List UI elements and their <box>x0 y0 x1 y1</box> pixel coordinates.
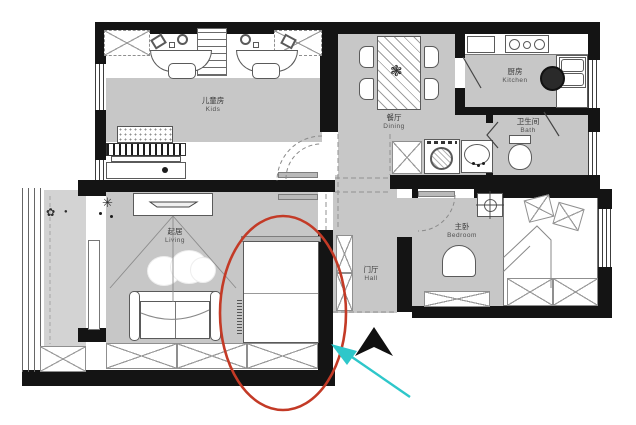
dining-chair-3 <box>424 46 439 68</box>
sofa-arm-right <box>210 291 221 341</box>
washing-machine-drum <box>430 147 453 170</box>
dining-chair-1 <box>359 46 374 68</box>
hall-shoe-cabinet-a <box>336 235 353 273</box>
room-label-bath-cn: 卫生间 <box>517 117 540 126</box>
lamp-dot-a <box>99 212 102 215</box>
wardrobe-cabinet <box>243 241 319 343</box>
laundry-cabinet <box>392 141 422 174</box>
kitchen-window <box>588 60 600 108</box>
kids-desk-fan-1 <box>177 34 188 45</box>
balcony-plant-small-icon: ● <box>64 209 68 215</box>
bedroom-doorway-floor <box>397 198 412 237</box>
room-label-kitchen-en: Kitchen <box>502 77 527 85</box>
room-label-kids: 儿童房 Kids <box>202 96 225 114</box>
balcony-sliding-frames <box>22 188 44 372</box>
burner-3 <box>534 39 545 50</box>
kids-cabinet-left <box>104 30 150 56</box>
wall-mid-left <box>95 180 335 192</box>
living-window-box-2 <box>177 343 247 369</box>
wall-bedroom-left <box>397 237 412 312</box>
kids-window <box>95 64 106 110</box>
room-label-bedroom-cn: 主卧 <box>455 222 470 231</box>
room-label-kids-cn: 儿童房 <box>202 96 225 105</box>
dining-chair-2 <box>359 78 374 100</box>
dining-plant-icon: ❃ <box>390 62 403 80</box>
sofa-seat <box>140 301 210 339</box>
north-arrow <box>355 327 393 356</box>
room-label-living-en: Living <box>165 237 185 245</box>
kitchen-stool <box>540 66 565 91</box>
room-label-hall: 门厅 Hall <box>364 265 379 283</box>
room-label-bedroom-en: Bedroom <box>447 232 477 240</box>
room-label-dining: 餐厅 Dining <box>383 113 404 131</box>
wall-bedroom-bottom <box>412 306 612 318</box>
basin-faucet-b <box>477 164 480 167</box>
wall-top <box>95 22 600 34</box>
tv-cabinet <box>133 193 213 216</box>
piano-keyboard <box>106 143 186 156</box>
coffee-table-blob-c <box>190 257 216 283</box>
dining-chair-4 <box>424 78 439 100</box>
bed-bench-2 <box>553 278 598 306</box>
wardrobe-shelf-line <box>244 293 318 294</box>
kids-desk-item-2 <box>253 42 259 48</box>
toilet-bowl <box>508 144 532 170</box>
wall-kids-left-b <box>95 110 106 160</box>
bedroom-window <box>598 209 612 267</box>
living-window-box-3 <box>247 343 318 369</box>
washing-machine-panel <box>427 141 457 144</box>
room-label-kitchen-cn: 厨房 <box>508 67 523 76</box>
kids-rug <box>117 126 173 143</box>
wall-bath-left-a <box>486 115 493 123</box>
wall-kitchen-left-a <box>455 34 465 58</box>
toilet-tank <box>509 135 531 144</box>
wall-right-b <box>588 108 600 132</box>
balcony-cabinet <box>40 346 86 372</box>
hall-shoe-cabinet-b <box>336 273 353 311</box>
threshold-bar-top <box>278 172 318 178</box>
wall-living-bottom <box>22 370 335 386</box>
balcony-sliding-panel <box>88 240 100 330</box>
burner-2 <box>523 41 531 49</box>
wash-basin <box>464 144 490 165</box>
bedroom-door-leaf <box>418 191 455 197</box>
wall-hall-left <box>318 230 333 370</box>
floorplan: 儿童房 Kids ❃ 餐厅 Dining 厨房 Kitchen 卫生间 <box>0 0 636 425</box>
piano-stool <box>162 167 168 173</box>
wall-bedroom-right-a <box>598 189 612 209</box>
wall-bedroom-right-b <box>598 267 612 318</box>
threshold-bar-bottom <box>278 194 318 200</box>
stove <box>505 35 549 53</box>
lamp-dot-b <box>110 215 113 218</box>
wall-mid-right <box>390 175 600 189</box>
callout-arrow-head <box>331 344 357 365</box>
wall-kitchen-bottom <box>455 107 588 115</box>
wall-right-a <box>588 34 600 60</box>
room-label-bath-en: Bath <box>517 127 540 135</box>
kids-desk-chair-2 <box>252 63 280 79</box>
living-window-box-1 <box>106 343 177 369</box>
wall-center-vertical <box>320 22 338 132</box>
bedroom-cabinet <box>424 291 490 307</box>
room-label-living: 起居 Living <box>165 227 185 245</box>
room-label-kitchen: 厨房 Kitchen <box>502 67 527 85</box>
basin-faucet-a <box>472 162 475 165</box>
burner-1 <box>509 39 520 50</box>
kids-desk-chair-1 <box>168 63 196 79</box>
wall-balcony-stub-top <box>78 180 106 196</box>
balcony-plant-icon: ✿ <box>46 206 55 219</box>
room-label-living-cn: 起居 <box>167 227 182 236</box>
ceiling-light-circle <box>484 199 497 212</box>
bath-window <box>588 132 600 176</box>
bedroom-armchair <box>442 245 476 277</box>
room-label-hall-en: Hall <box>364 275 379 283</box>
room-label-kids-en: Kids <box>202 106 225 114</box>
callout-arrow-tail <box>349 355 410 397</box>
basin-faucet-c <box>482 162 485 165</box>
room-label-dining-en: Dining <box>383 123 404 131</box>
kids-desk-fan-2 <box>240 34 251 45</box>
room-label-bath: 卫生间 Bath <box>517 117 540 135</box>
room-label-dining-cn: 餐厅 <box>387 113 402 122</box>
sink-basin-1 <box>561 59 584 72</box>
bed-bench-1 <box>507 278 553 306</box>
wall-balcony-stub-bottom <box>78 328 106 342</box>
sofa-arm-left <box>129 291 140 341</box>
ceiling-lamp-icon: ✳ <box>102 195 113 211</box>
kitchen-fridge <box>467 36 495 53</box>
room-label-hall-cn: 门厅 <box>364 265 379 274</box>
radiator-strip <box>237 300 242 334</box>
kids-desk-item-1 <box>169 42 175 48</box>
room-label-bedroom: 主卧 Bedroom <box>447 222 477 240</box>
piano-body <box>106 162 186 179</box>
